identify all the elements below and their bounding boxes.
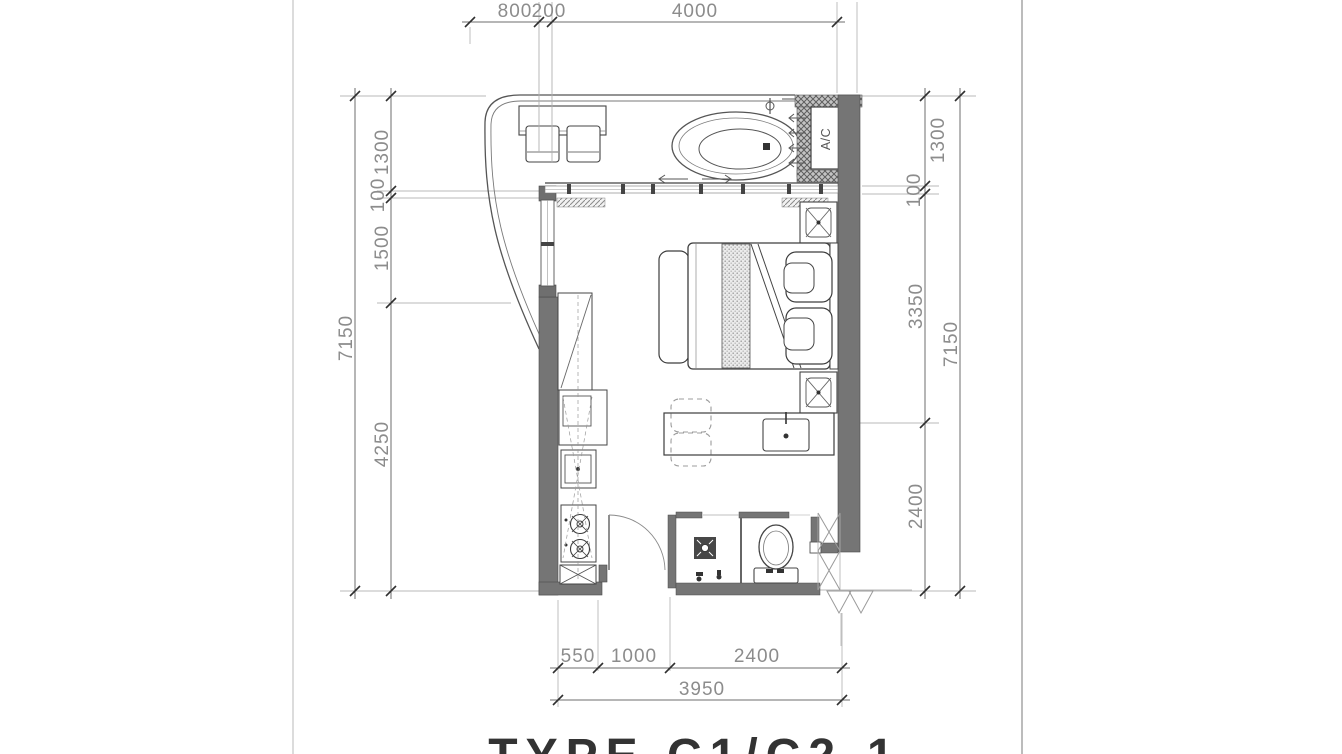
door-jamb: [599, 565, 607, 582]
dim-bottom-1000: 1000: [611, 646, 657, 667]
dim-left-100: 100: [368, 178, 389, 213]
dim-bottom-2400: 2400: [734, 646, 780, 667]
bathroom: [668, 512, 838, 595]
cushion: [784, 318, 814, 350]
bathroom-wall: [676, 583, 820, 595]
jacuzzi-tub: [672, 95, 802, 180]
dim-right-3350: 3350: [906, 283, 927, 329]
bedroom-window-wall: [545, 175, 838, 194]
bar-stool: [567, 126, 600, 162]
toilet: [754, 525, 798, 583]
bar-stool: [526, 126, 559, 162]
shower-controls-icon: [696, 570, 722, 582]
ac-label: A/C: [819, 128, 833, 150]
bathroom-door: [609, 515, 665, 570]
wall-right: [838, 95, 860, 552]
dim-left-total: 7150: [336, 315, 357, 361]
dimension-labels: 800 200 4000 7150 1300 100 1500 4250 715…: [336, 1, 962, 700]
dim-right-total: 7150: [941, 321, 962, 367]
nightstand: [800, 372, 837, 413]
dim-top-800: 800: [498, 1, 533, 22]
bathroom-wall: [676, 512, 702, 518]
sheet-boundaries: [293, 0, 1022, 754]
floorplan-sheet: A/C: [0, 0, 1342, 754]
threshold-triangle-icon: [827, 591, 851, 613]
sliding-direction-arrows-icon: [659, 175, 731, 183]
dim-right-100: 100: [904, 173, 925, 208]
drain: [763, 143, 770, 150]
left-window: [541, 200, 554, 286]
curtain-symbol: [557, 198, 605, 207]
dim-top-4000: 4000: [672, 1, 718, 22]
threshold-triangle-icon: [849, 591, 873, 613]
dim-top-200: 200: [532, 1, 567, 22]
door-swing: [609, 515, 665, 570]
extension-lines: [340, 2, 976, 707]
dim-right-2400: 2400: [906, 483, 927, 529]
wall-left: [539, 297, 558, 595]
bed-runner: [722, 244, 750, 368]
dim-bottom-550: 550: [561, 646, 596, 667]
dim-left-4250: 4250: [372, 421, 393, 467]
nightstand: [800, 202, 837, 243]
cushion: [784, 263, 814, 293]
plan-title: TYPE C1/C2-1: [488, 730, 901, 754]
shower-drain: [694, 537, 716, 559]
dimension-ticks: [350, 17, 965, 705]
dim-right-1300: 1300: [928, 117, 949, 163]
bed: [659, 243, 838, 369]
bathroom-wall: [668, 515, 676, 588]
dim-left-1500: 1500: [372, 225, 393, 271]
door-jamb: [810, 542, 821, 553]
bathroom-wall: [739, 512, 789, 518]
dim-bottom-total: 3950: [679, 679, 725, 700]
dim-left-1300: 1300: [372, 129, 393, 175]
faucet-icon: [784, 434, 789, 439]
floorplan-drawing: A/C: [0, 0, 1342, 754]
window-post: [539, 285, 556, 297]
footboard-bench: [659, 251, 689, 363]
kitchenette: [558, 293, 607, 584]
